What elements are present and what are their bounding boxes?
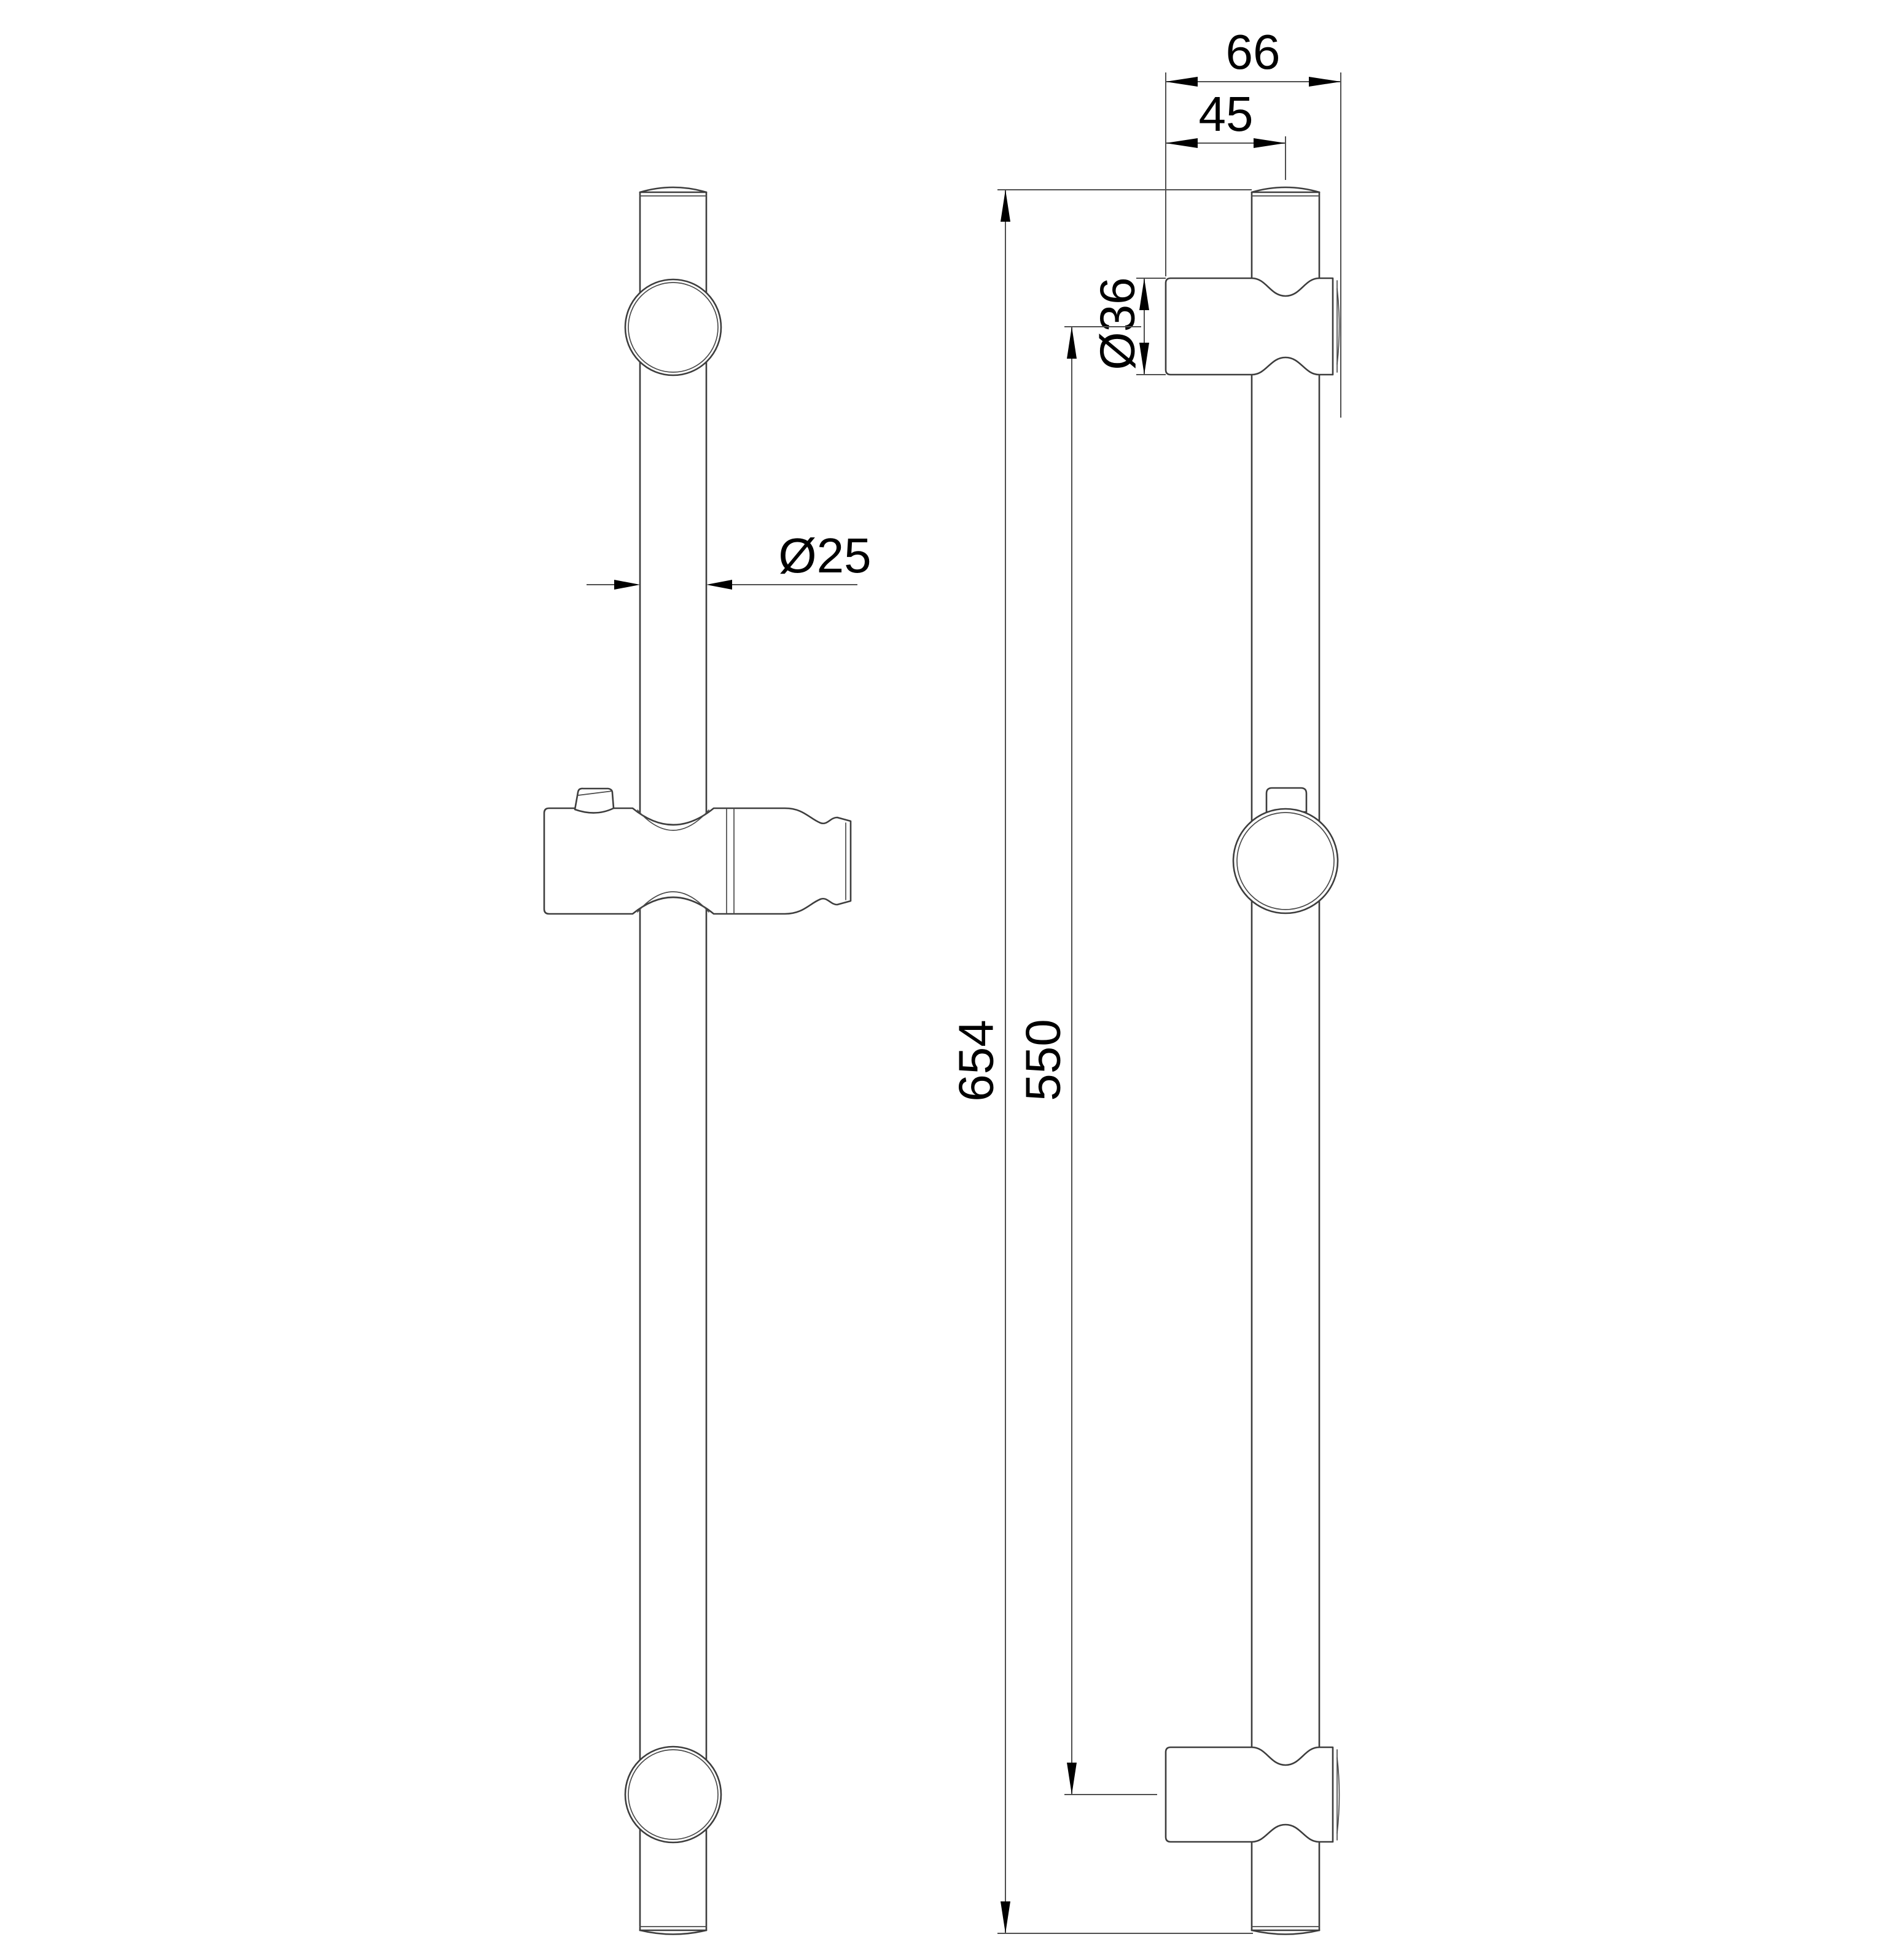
wall-mount-bottom-front <box>625 1747 721 1842</box>
holder-lock-knob <box>575 789 614 813</box>
dim-label-654: 654 <box>949 1019 1004 1101</box>
dim-bar-diameter: Ø25 <box>587 528 872 590</box>
dim-overall-length: 654 <box>949 190 1254 1933</box>
dim-bar-axis-offset: 45 <box>1166 87 1286 180</box>
holder-knob-circle-outer <box>1233 809 1338 913</box>
dim-label-25: Ø25 <box>778 528 871 583</box>
dim-label-550: 550 <box>1016 1019 1071 1101</box>
dim-label-66: 66 <box>1226 25 1281 79</box>
front-view <box>544 187 851 1935</box>
technical-drawing-page: 66 45 Ø36 Ø25 <box>0 0 1904 1953</box>
shower-slide-bar-drawing: 66 45 Ø36 Ø25 <box>0 0 1904 1953</box>
dim-bracket-diameter: Ø36 <box>1090 277 1166 375</box>
dim-bracket-center-distance: 550 <box>1016 327 1158 1795</box>
wall-bracket-bottom-side <box>1166 1747 1340 1842</box>
dim-label-36: Ø36 <box>1090 277 1145 370</box>
dim-label-45: 45 <box>1199 87 1254 141</box>
slide-bar-tube-side <box>1252 187 1319 1935</box>
wall-bracket-top-side <box>1166 278 1340 375</box>
handset-holder-front <box>544 789 851 914</box>
slide-bar-tube-front <box>640 187 706 1935</box>
wall-mount-top-front <box>625 279 721 375</box>
holder-body <box>544 808 851 914</box>
side-view <box>1166 187 1340 1935</box>
handset-holder-side <box>1233 788 1338 913</box>
